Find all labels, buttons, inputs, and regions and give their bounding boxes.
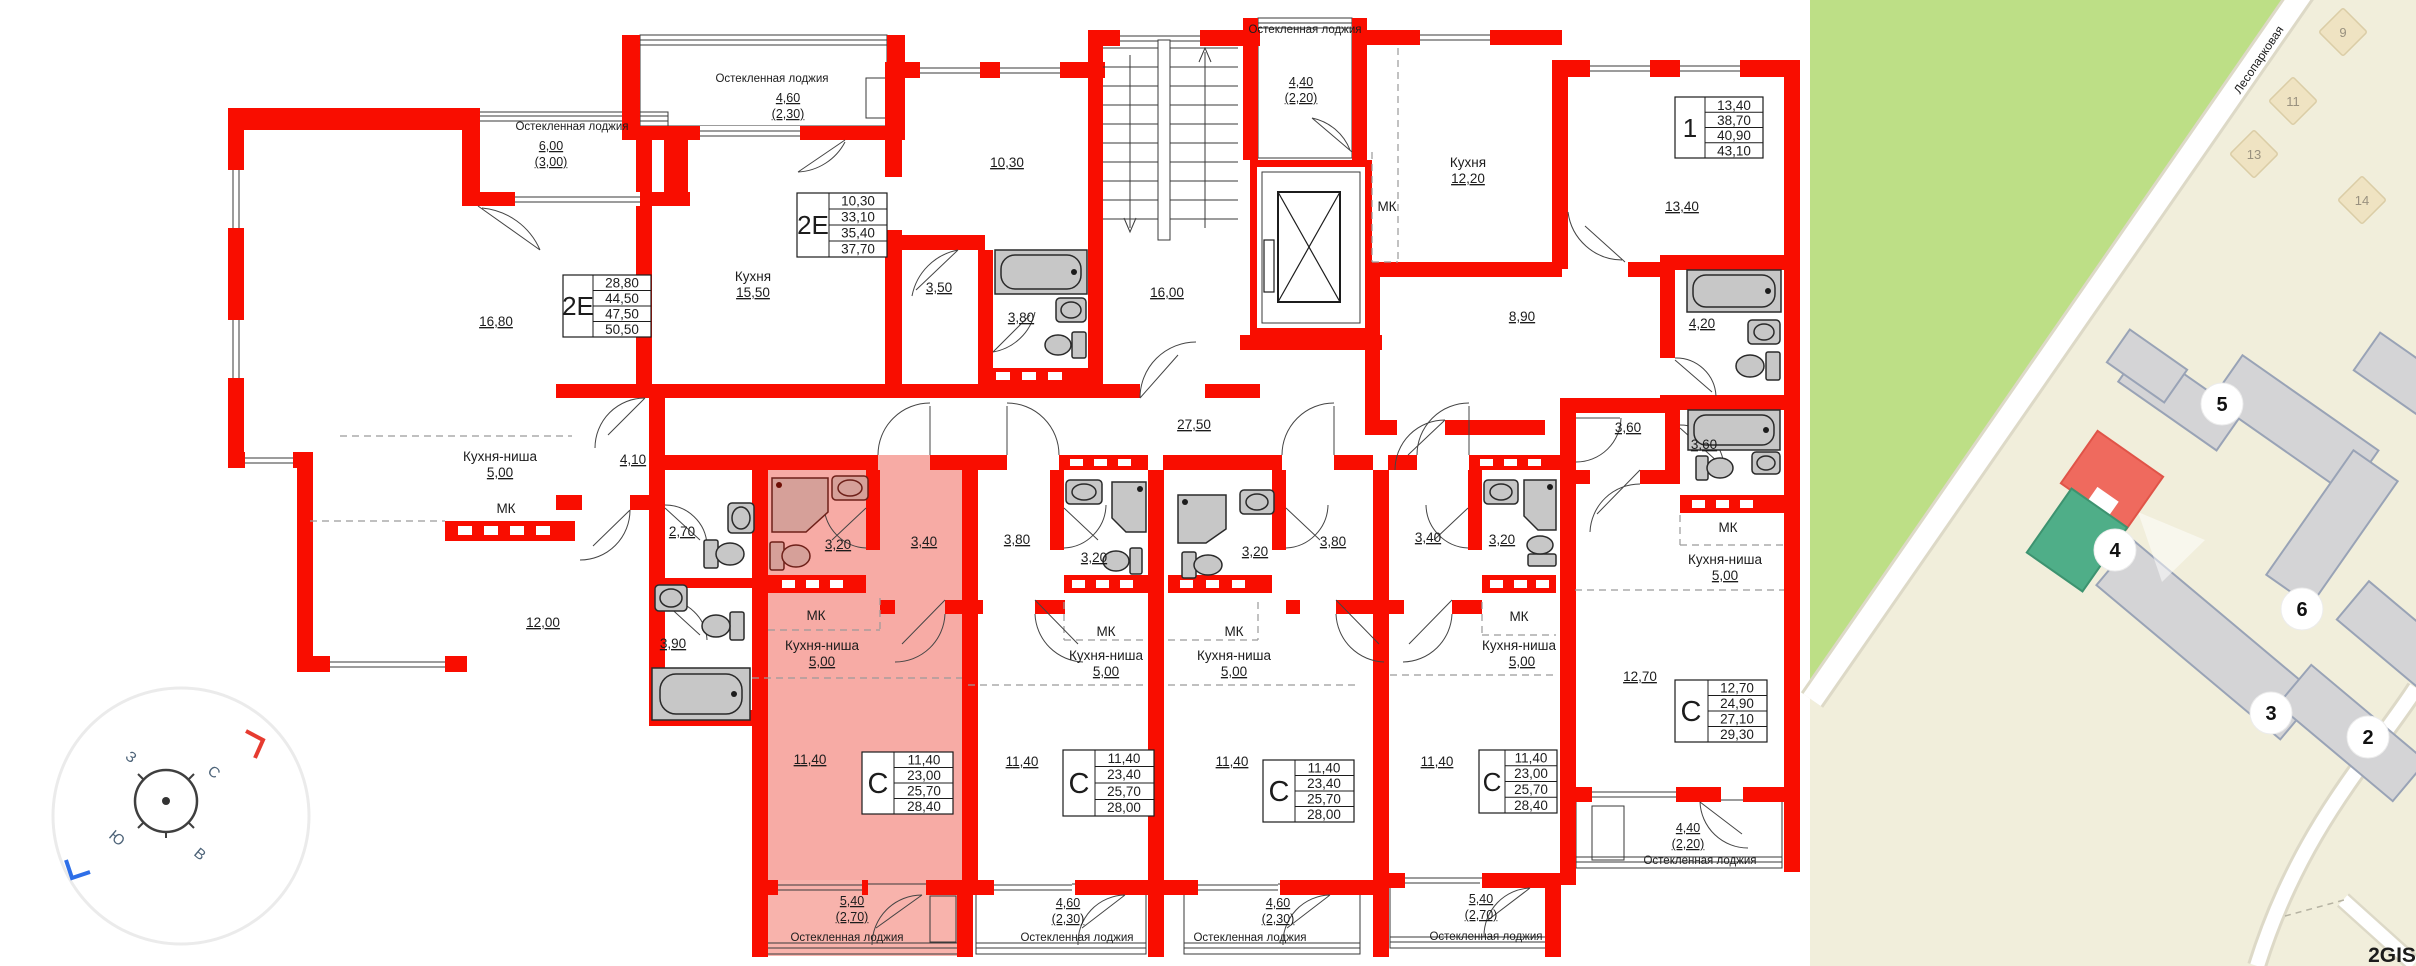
small-building-9-label: 9 (2339, 25, 2346, 40)
loggia-area: 6,00 (539, 139, 563, 153)
loggia-area: 4,40 (1289, 75, 1313, 89)
loggia-area-half: (2,20) (1672, 837, 1705, 851)
sink-icon (1240, 490, 1274, 514)
kitchen-niche-label: Кухня-ниша (785, 638, 859, 653)
room-area: 11,40 (794, 752, 827, 767)
kitchen-niche-area: 5,00 (1509, 654, 1535, 669)
apartment-table-1[interactable]: 1 13,40 38,70 40,90 43,10 (1675, 97, 1763, 159)
toilet-icon (704, 540, 744, 568)
map-panel[interactable]: 9 11 13 14 5 4 6 3 2 Лесопарковая 2GIS (1810, 0, 2416, 966)
loggia-area-half: (2,30) (772, 107, 805, 121)
kitchen-niche-label: Кухня-ниша (1069, 648, 1143, 663)
compass-north-label: С (204, 762, 223, 782)
table-value: 24,90 (1720, 696, 1754, 711)
table-value: 28,00 (1307, 807, 1341, 822)
room-area: 3,80 (1320, 534, 1346, 549)
table-value: 25,70 (1514, 782, 1548, 797)
room-area: 4,10 (620, 452, 646, 467)
badge-3-label[interactable]: 3 (2265, 703, 2276, 725)
sink-icon (1748, 320, 1780, 344)
table-value: 11,40 (1108, 751, 1141, 766)
sink-icon (655, 585, 687, 611)
loggia-area-half: (3,00) (535, 155, 568, 169)
room-area: 8,90 (1509, 309, 1535, 324)
room-area: 12,70 (1623, 669, 1657, 684)
mk-label: МК (1377, 199, 1396, 214)
badge-2-label[interactable]: 2 (2362, 727, 2373, 749)
apartment-type: С (1069, 768, 1090, 800)
table-value: 43,10 (1717, 144, 1751, 159)
kitchen-niche-area: 5,00 (487, 465, 513, 480)
room-area: 4,20 (1689, 316, 1715, 331)
table-value: 25,70 (1307, 792, 1341, 807)
room-area: 3,20 (1242, 544, 1268, 559)
kitchen-niche-area: 5,00 (1221, 664, 1247, 679)
loggia-area-half: (2,70) (836, 910, 869, 924)
apartment-table-studio-b[interactable]: С 11,40 23,40 25,70 28,00 (1063, 750, 1154, 816)
table-value: 28,80 (605, 276, 639, 291)
loggia-area-half: (2,20) (1285, 91, 1318, 105)
table-value: 23,00 (1514, 766, 1548, 781)
shower-icon (1112, 482, 1146, 532)
mk-label: МК (1224, 624, 1243, 639)
toilet-icon (1696, 456, 1733, 480)
sink-icon (1484, 480, 1518, 504)
sink-icon (1066, 480, 1102, 504)
table-value: 33,10 (841, 210, 875, 225)
table-value: 11,40 (1308, 761, 1341, 776)
kitchen-niche-label: Кухня-ниша (1688, 552, 1762, 567)
badge-4-label[interactable]: 4 (2109, 540, 2121, 562)
sink-icon (728, 503, 754, 533)
apartment-table-studio-selected[interactable]: С 11,40 23,00 25,70 28,40 (862, 752, 953, 814)
toilet-icon (1736, 352, 1780, 380)
table-value: 11,40 (908, 753, 941, 768)
room-area: 3,90 (660, 636, 686, 651)
table-value: 38,70 (1717, 113, 1751, 128)
table-value: 47,50 (605, 307, 639, 322)
table-value: 13,40 (1717, 98, 1751, 113)
loggia-label: Остекленная лоджия (715, 73, 828, 85)
bathtub-icon (1687, 270, 1781, 312)
table-value: 23,40 (1107, 767, 1141, 782)
badge-5-label[interactable]: 5 (2216, 394, 2227, 416)
loggia-label: Остекленная лоджия (1020, 932, 1133, 944)
table-value: 44,50 (605, 291, 639, 306)
shower-icon (1524, 480, 1556, 530)
kitchen-niche-label: Кухня-ниша (1197, 648, 1271, 663)
table-value: 28,00 (1107, 800, 1141, 815)
loggia-area: 4,60 (776, 91, 800, 105)
table-value: 11,40 (1515, 751, 1548, 766)
mk-label: МК (496, 501, 515, 516)
room-area: 3,80 (1004, 532, 1030, 547)
apartment-type: С (1269, 776, 1290, 808)
room-area: 11,40 (1216, 754, 1249, 769)
corridor-area: 27,50 (1177, 417, 1211, 432)
kitchen-label: Кухня (1450, 155, 1486, 170)
apartment-table-studio-d[interactable]: С 11,40 23,00 25,70 28,40 (1479, 750, 1557, 813)
apartment-table-studio-c[interactable]: С 11,40 23,40 25,70 28,00 (1263, 760, 1354, 822)
loggia-label: Остекленная лоджия (1193, 932, 1306, 944)
table-value: 37,70 (841, 242, 875, 257)
kitchen-niche-area: 5,00 (809, 654, 835, 669)
room-area: 2,70 (669, 524, 695, 539)
room-area: 3,40 (1415, 530, 1441, 545)
sink-icon (832, 476, 868, 500)
table-value: 23,00 (907, 768, 941, 783)
apartment-table-2e-mid[interactable]: 2Е 10,30 33,10 35,40 37,70 (797, 193, 887, 257)
loggia-area: 5,40 (840, 894, 864, 908)
toilet-icon (1182, 552, 1222, 578)
room-area: 3,20 (1489, 532, 1515, 547)
apartment-type: С (868, 768, 889, 800)
kitchen-niche-label: Кухня-ниша (1482, 638, 1556, 653)
toilet-icon (1527, 536, 1556, 566)
compass-center-dot (162, 797, 170, 805)
loggia-area: 4,40 (1676, 821, 1700, 835)
stairs (1103, 40, 1238, 240)
toilet-icon (770, 542, 810, 570)
kitchen-niche-label: Кухня-ниша (463, 449, 537, 464)
room-area: 16,80 (479, 314, 513, 329)
badge-6-label[interactable]: 6 (2296, 599, 2307, 621)
loggia-area-half: (2,30) (1052, 912, 1085, 926)
table-value: 40,90 (1717, 128, 1751, 143)
toilet-icon (1103, 548, 1142, 574)
loggia-area: 5,40 (1469, 892, 1493, 906)
mk-label: МК (806, 608, 825, 623)
loggia-label: Остекленная лоджия (1643, 855, 1756, 867)
compass-west-label: З (122, 748, 140, 767)
shower-icon (1178, 495, 1226, 543)
table-value: 10,30 (841, 194, 875, 209)
table-value: 23,40 (1307, 776, 1341, 791)
room-area: 11,40 (1421, 754, 1454, 769)
apartment-type: 1 (1683, 113, 1697, 143)
toilet-icon (1045, 332, 1086, 358)
compass-south-label: Ю (105, 827, 128, 850)
room-area: 16,00 (1150, 285, 1184, 300)
loggia-label: Остекленная лоджия (515, 121, 628, 133)
kitchen-area: 15,50 (736, 285, 770, 300)
watermark-2gis: 2GIS (2368, 944, 2416, 966)
kitchen-niche-area: 5,00 (1712, 568, 1738, 583)
bathtub-icon (652, 668, 750, 720)
room-area: 3,20 (1081, 550, 1107, 565)
room-area: 10,30 (990, 155, 1024, 170)
apartment-type: С (1681, 696, 1702, 728)
room-area: 3,60 (1691, 437, 1717, 452)
loggia-area: 4,60 (1266, 896, 1290, 910)
mk-label: МК (1718, 520, 1737, 535)
loggia-label: Остекленная лоджия (1429, 931, 1542, 943)
loggia-area-half: (2,70) (1465, 908, 1498, 922)
elevator (1262, 172, 1360, 323)
table-value: 27,10 (1720, 712, 1754, 727)
compass: С В Ю З (53, 688, 309, 944)
room-area: 3,60 (1615, 420, 1641, 435)
mk-label: МК (1096, 624, 1115, 639)
room-area: 11,40 (1006, 754, 1039, 769)
room-area: 13,40 (1665, 199, 1699, 214)
apartment-type: 2Е (797, 210, 829, 240)
loggia-area-half: (2,30) (1262, 912, 1295, 926)
room-area: 3,80 (1008, 310, 1034, 325)
room-area: 3,50 (926, 280, 952, 295)
kitchen-niche-area: 5,00 (1093, 664, 1119, 679)
sink-icon (1056, 298, 1086, 322)
apartment-table-2e-left[interactable]: 2Е 28,80 44,50 47,50 50,50 (562, 275, 651, 337)
small-building-13-label: 13 (2247, 147, 2261, 162)
room-area: 3,20 (825, 537, 851, 552)
sink-icon (1752, 452, 1780, 474)
table-value: 12,70 (1720, 681, 1754, 696)
bathtub-icon (995, 250, 1087, 294)
table-value: 35,40 (841, 226, 875, 241)
apartment-table-studio-e[interactable]: С 12,70 24,90 27,10 29,30 (1675, 680, 1767, 742)
small-building-11-label: 11 (2286, 94, 2300, 109)
loggia-label: Остекленная лоджия (790, 932, 903, 944)
table-value: 28,40 (1514, 798, 1548, 813)
table-value: 28,40 (907, 799, 941, 814)
compass-red-mark (246, 731, 263, 758)
scene: 9 11 13 14 5 4 6 3 2 Лесопарковая 2GIS (0, 0, 2416, 966)
kitchen-label: Кухня (735, 269, 771, 284)
table-value: 29,30 (1720, 727, 1754, 742)
compass-east-label: В (190, 845, 209, 864)
apartment-type: С (1483, 767, 1502, 797)
room-area: 3,40 (911, 534, 937, 549)
loggia-area: 4,60 (1056, 896, 1080, 910)
screenshot-root: 9 11 13 14 5 4 6 3 2 Лесопарковая 2GIS (0, 0, 2416, 966)
table-value: 50,50 (605, 322, 639, 337)
small-building-14-label: 14 (2355, 193, 2369, 208)
compass-blue-mark (66, 860, 90, 878)
loggia-label: Остекленная лоджия (1248, 24, 1361, 36)
room-area: 12,00 (526, 615, 560, 630)
table-value: 25,70 (1107, 784, 1141, 799)
toilet-icon (702, 612, 744, 640)
floor-plan: Остекленная лоджия 6,00 (3,00) Остекленн… (226, 18, 1800, 957)
mk-label: МК (1509, 609, 1528, 624)
apartment-type: 2Е (562, 291, 594, 321)
table-value: 25,70 (907, 784, 941, 799)
kitchen-area: 12,20 (1451, 171, 1485, 186)
